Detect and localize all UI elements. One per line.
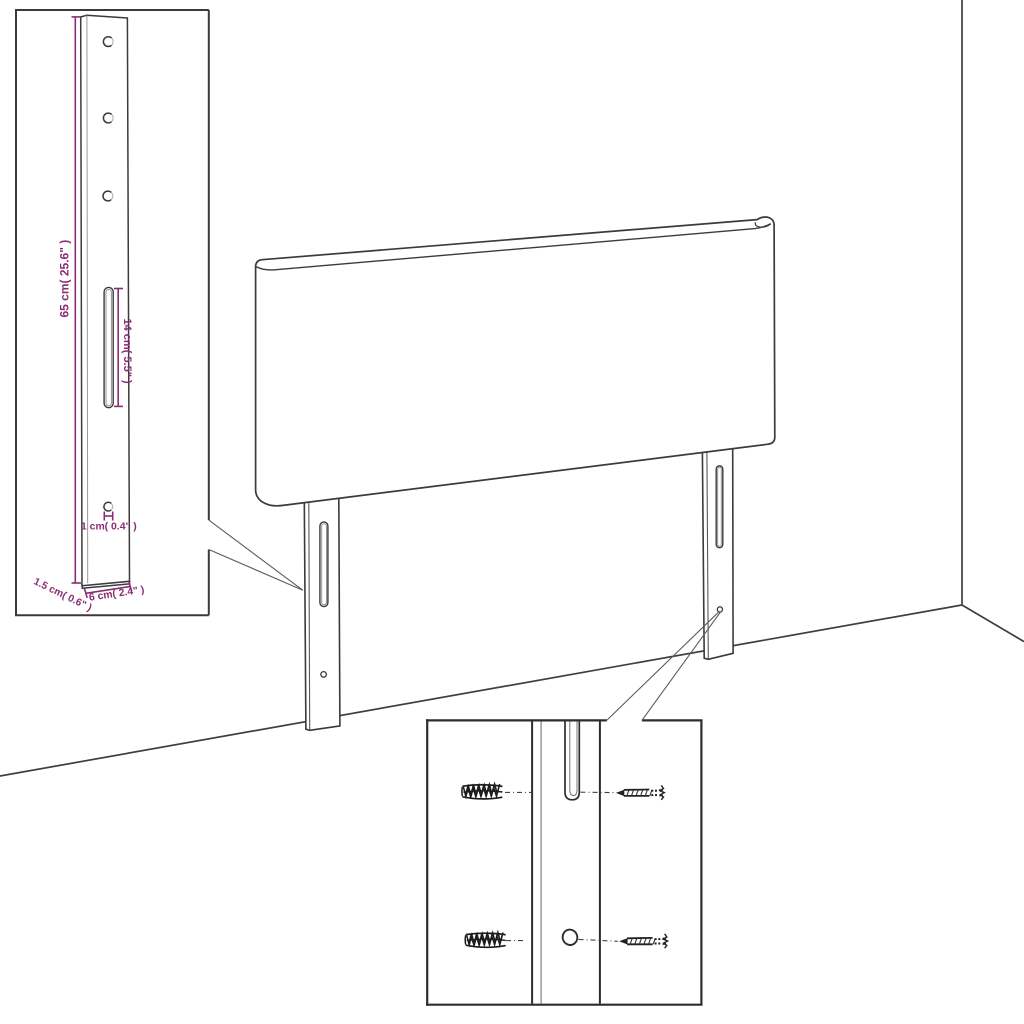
svg-text:14 cm( 5.5" ): 14 cm( 5.5" )	[121, 319, 133, 384]
svg-text:65 cm( 25.6" ): 65 cm( 25.6" )	[58, 240, 72, 318]
svg-text:1 cm( 0.4" ): 1 cm( 0.4" )	[81, 522, 137, 533]
